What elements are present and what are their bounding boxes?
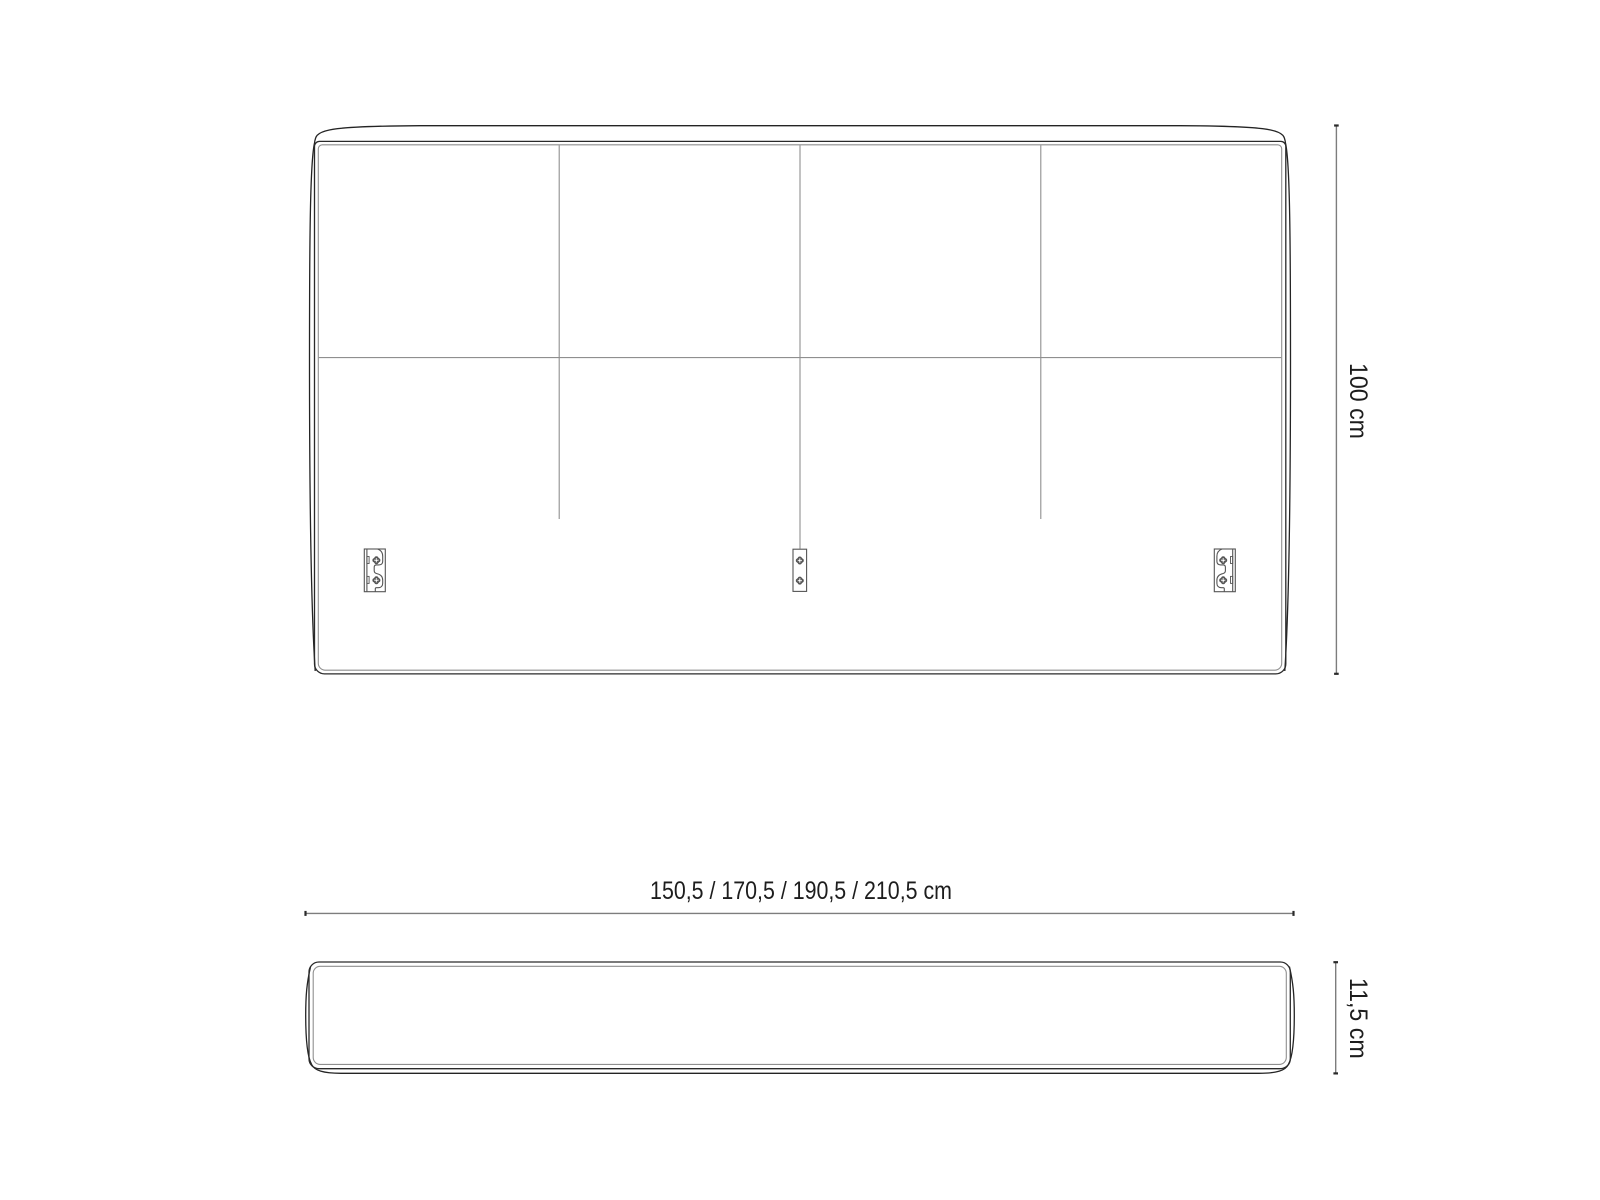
svg-text:100 cm: 100 cm bbox=[1344, 363, 1372, 439]
svg-text:150,5 / 170,5 / 190,5 / 210,5: 150,5 / 170,5 / 190,5 / 210,5 cm bbox=[650, 877, 952, 905]
svg-text:11,5 cm: 11,5 cm bbox=[1344, 978, 1372, 1059]
